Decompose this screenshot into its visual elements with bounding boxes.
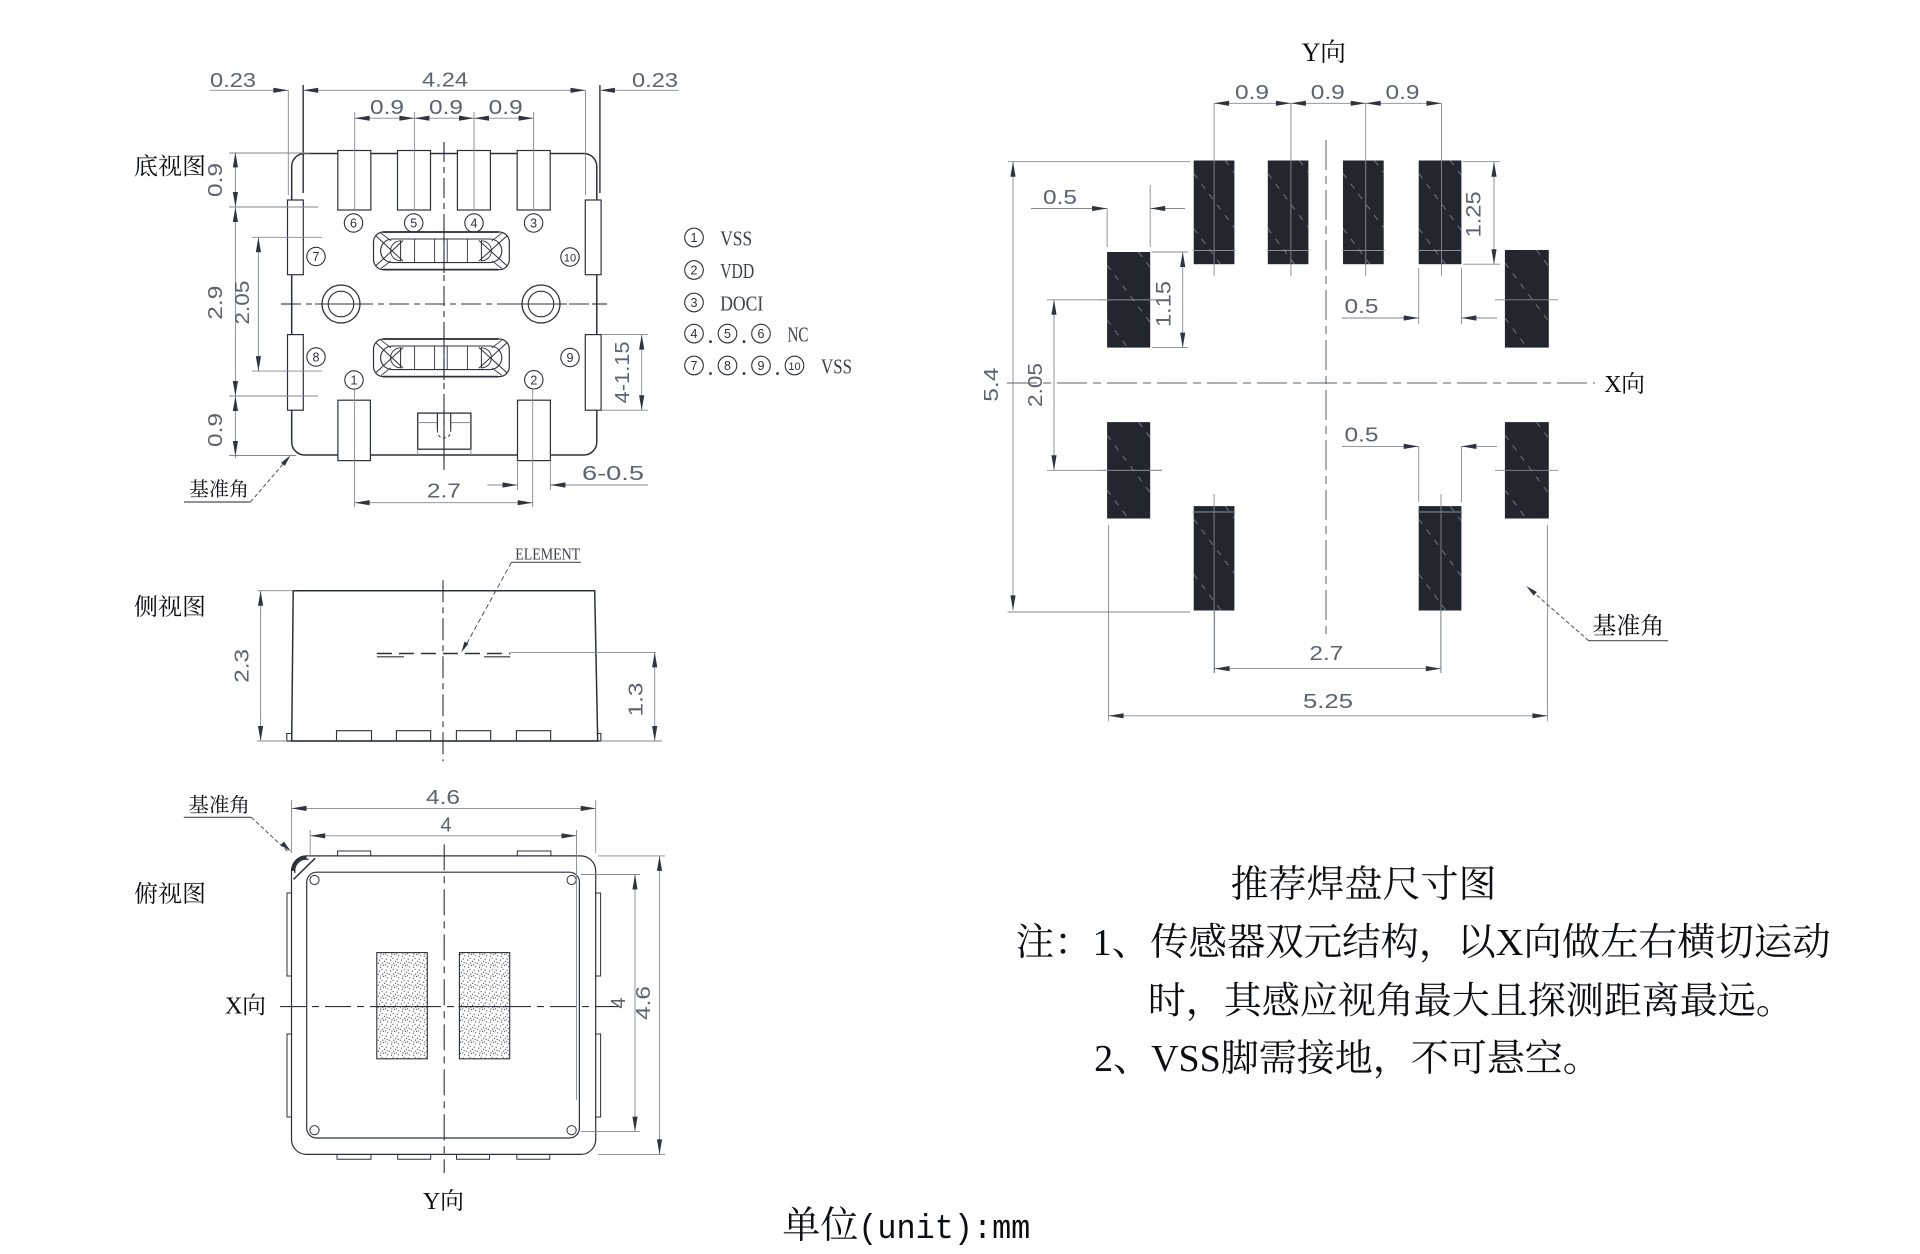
svg-text:Y: Y — [1302, 38, 1321, 67]
svg-text:7: 7 — [691, 359, 698, 373]
svg-text:1: 1 — [691, 231, 698, 245]
svg-text:0.23: 0.23 — [632, 70, 678, 92]
svg-text:1: 1 — [1093, 922, 1112, 964]
svg-text:4-1.15: 4-1.15 — [612, 341, 634, 403]
svg-text:9: 9 — [567, 351, 574, 365]
svg-text:0.9: 0.9 — [205, 163, 227, 197]
svg-text:4.6: 4.6 — [633, 986, 655, 1020]
svg-text:5.25: 5.25 — [1303, 691, 1353, 713]
svg-text:8: 8 — [313, 351, 320, 365]
svg-text:7: 7 — [313, 250, 320, 264]
svg-text:(unit):mm: (unit):mm — [858, 1211, 1030, 1249]
svg-text:VSS: VSS — [1151, 1038, 1221, 1080]
svg-text:2.9: 2.9 — [205, 286, 227, 320]
svg-text:2: 2 — [1094, 1038, 1113, 1080]
svg-text:NC: NC — [788, 323, 809, 347]
svg-text:10: 10 — [788, 361, 800, 373]
svg-text:VSS: VSS — [720, 227, 752, 251]
svg-text:4: 4 — [440, 815, 451, 837]
svg-text:2.7: 2.7 — [1309, 643, 1343, 665]
svg-text:4: 4 — [691, 327, 698, 341]
svg-text:0.5: 0.5 — [1043, 187, 1077, 209]
svg-text:4.24: 4.24 — [422, 70, 468, 92]
svg-text:6-0.5: 6-0.5 — [582, 463, 644, 485]
svg-text:VDD: VDD — [720, 259, 754, 283]
svg-text:5.4: 5.4 — [981, 368, 1003, 402]
svg-text:0.9: 0.9 — [1386, 82, 1420, 104]
svg-text:VSS: VSS — [821, 355, 852, 379]
svg-text:0.23: 0.23 — [210, 70, 256, 92]
svg-text:2.3: 2.3 — [231, 649, 253, 683]
svg-text:0.9: 0.9 — [489, 97, 523, 119]
svg-text:1.3: 1.3 — [626, 683, 648, 717]
svg-text:2.05: 2.05 — [1025, 363, 1047, 407]
svg-text:2: 2 — [530, 373, 537, 387]
svg-text:0.9: 0.9 — [370, 97, 404, 119]
svg-text:1: 1 — [351, 374, 358, 388]
svg-text:0.5: 0.5 — [1345, 425, 1379, 447]
svg-text:DOCI: DOCI — [720, 292, 763, 316]
svg-text:5: 5 — [724, 327, 731, 341]
svg-text:0.9: 0.9 — [205, 413, 227, 447]
svg-text:6: 6 — [758, 327, 765, 341]
svg-text:6: 6 — [350, 217, 357, 231]
svg-text:2: 2 — [691, 264, 698, 278]
svg-text:0.9: 0.9 — [429, 97, 463, 119]
svg-text:0.9: 0.9 — [1235, 82, 1269, 104]
svg-text:4.6: 4.6 — [426, 787, 460, 809]
svg-text:1.25: 1.25 — [1463, 191, 1486, 237]
svg-text:1.15: 1.15 — [1153, 281, 1176, 327]
svg-text:5: 5 — [410, 217, 417, 231]
svg-text:2.05: 2.05 — [232, 281, 254, 325]
svg-text:3: 3 — [691, 296, 698, 310]
svg-text:X: X — [1604, 372, 1621, 398]
svg-text:10: 10 — [564, 253, 576, 265]
svg-text:2.7: 2.7 — [427, 481, 461, 503]
svg-text:4: 4 — [608, 997, 630, 1008]
svg-text:8: 8 — [724, 359, 731, 373]
svg-text:X: X — [225, 994, 242, 1020]
svg-text:0.9: 0.9 — [1311, 82, 1345, 104]
svg-text:9: 9 — [758, 359, 765, 373]
svg-text:X: X — [1496, 922, 1524, 964]
svg-text:0.5: 0.5 — [1345, 296, 1379, 318]
svg-text:3: 3 — [530, 217, 537, 231]
svg-text:ELEMENT: ELEMENT — [515, 545, 580, 564]
svg-text:4: 4 — [471, 217, 478, 231]
svg-text:Y: Y — [423, 1189, 440, 1215]
